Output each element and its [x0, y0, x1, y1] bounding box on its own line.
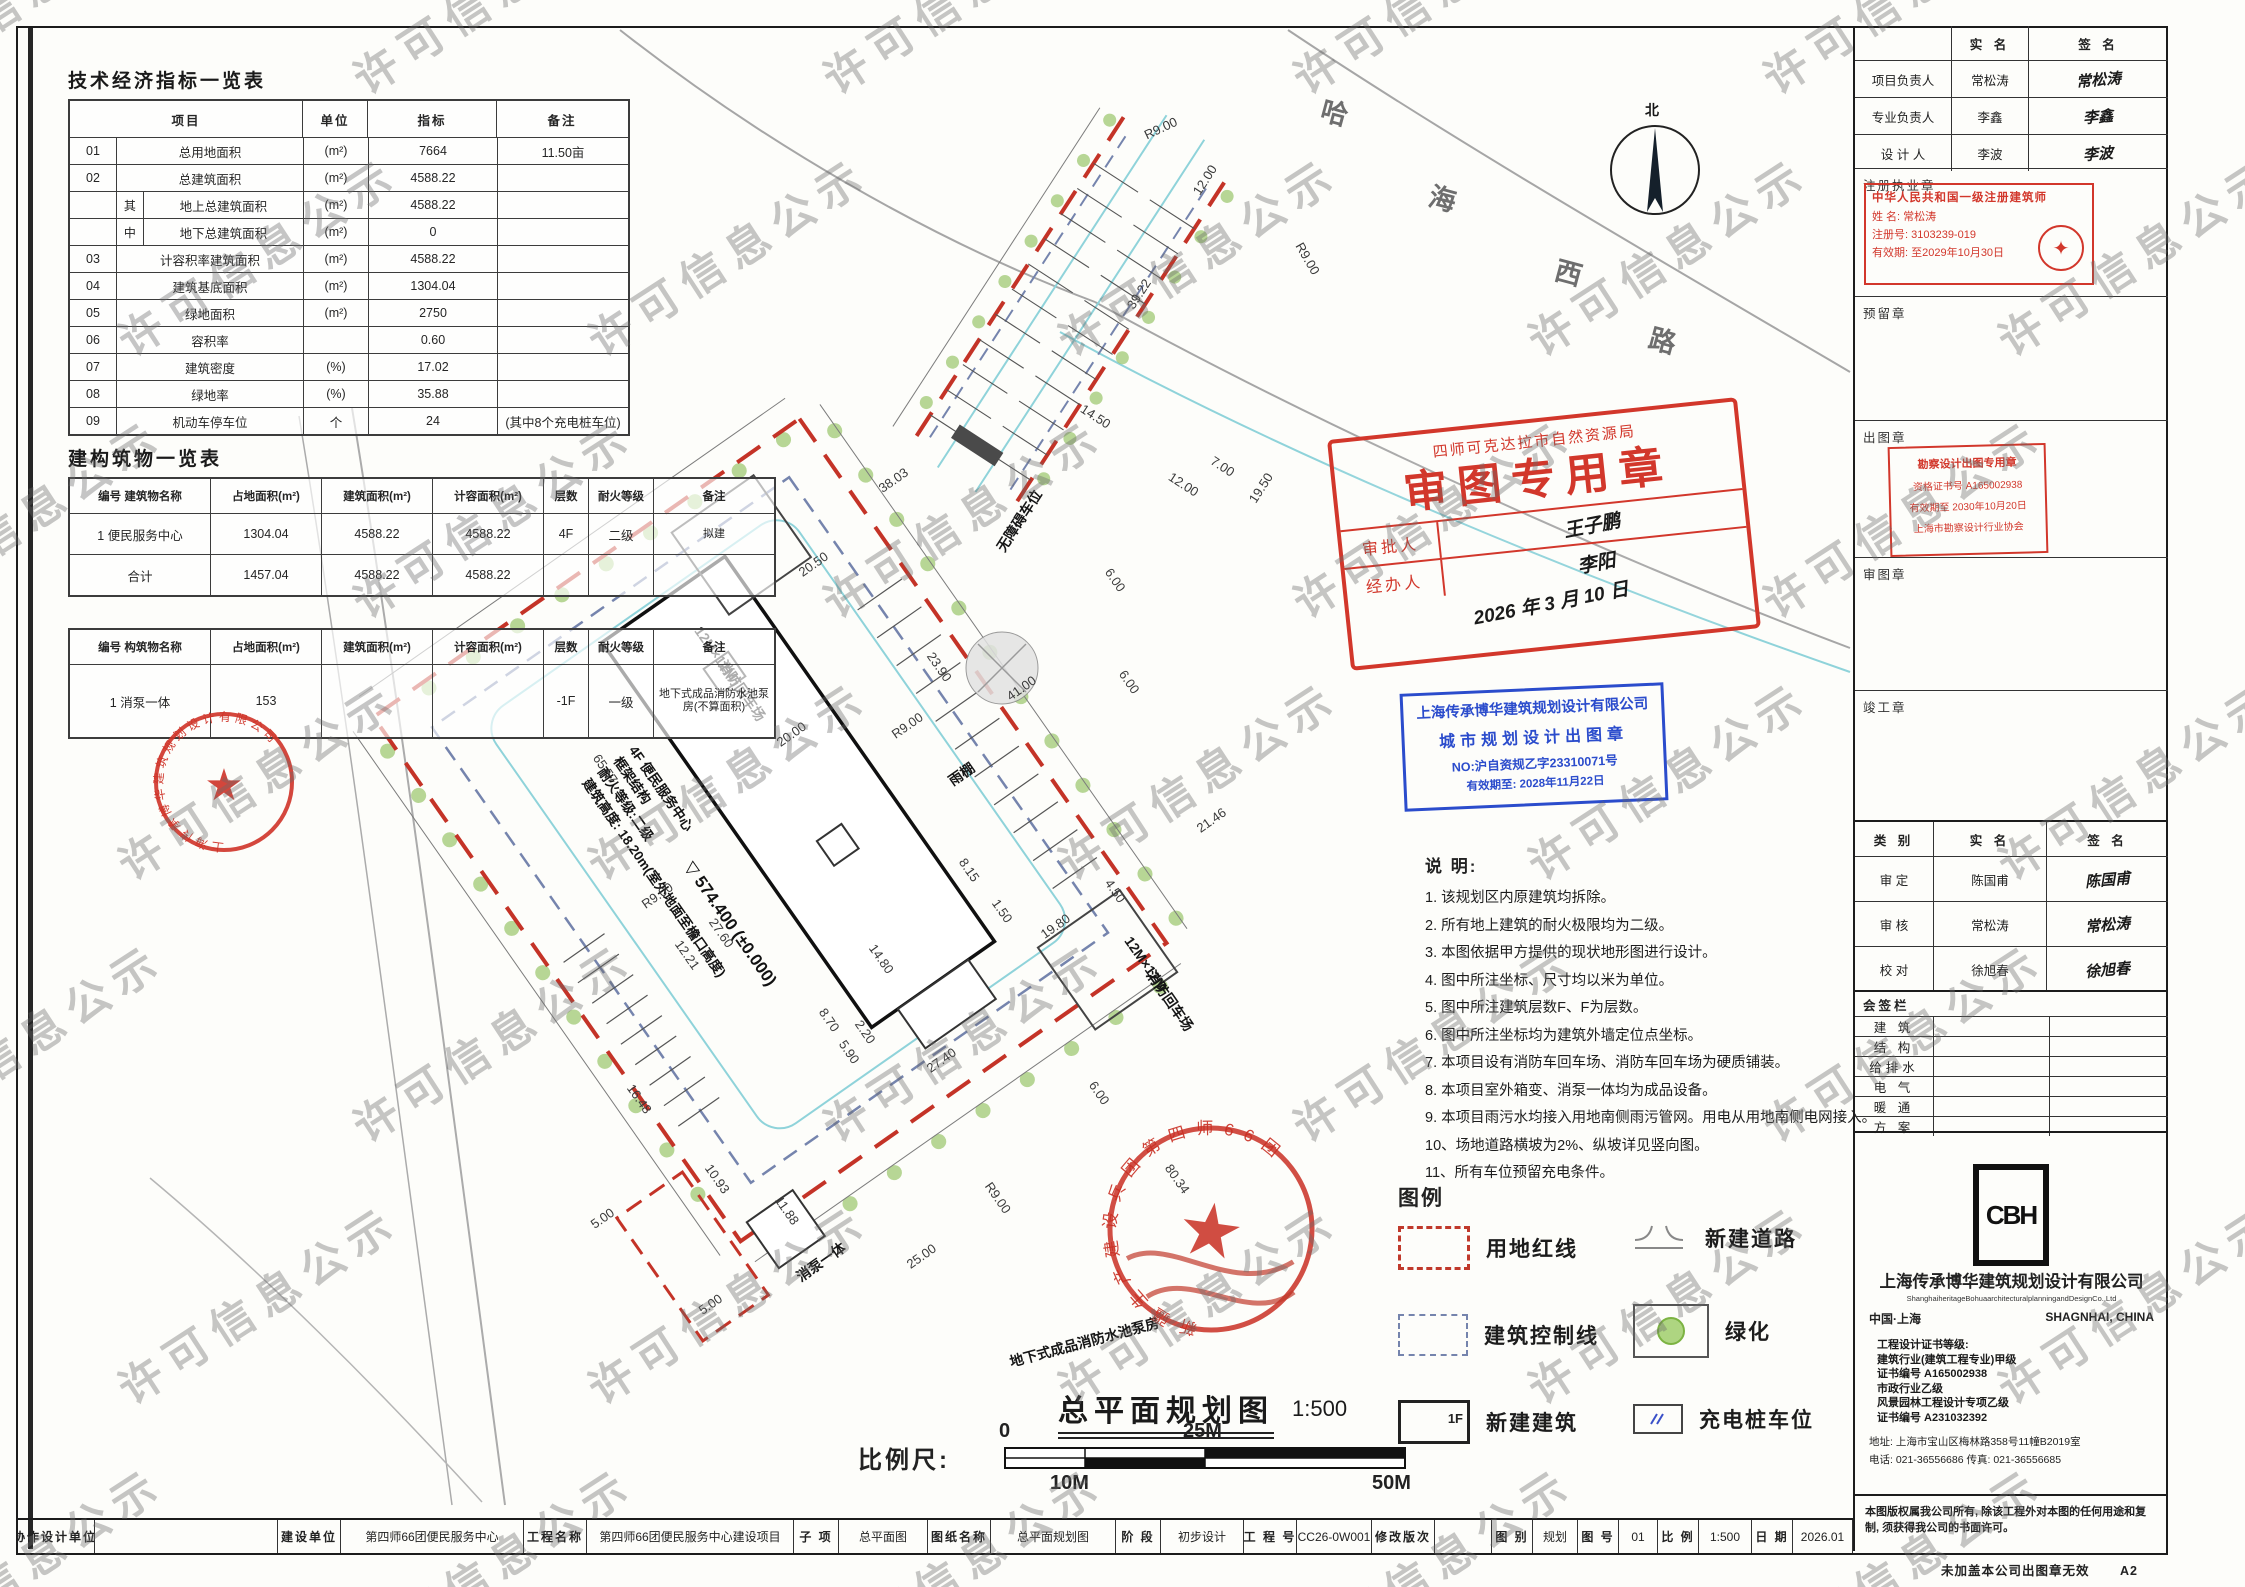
legend-label: 充电桩车位 [1699, 1404, 1814, 1434]
titlebar-value: 总平面规划图 [991, 1520, 1116, 1553]
dimension-text: 6.00 [1116, 667, 1143, 696]
table-cell: 1457.04 [211, 555, 322, 595]
titlebar-value: 1:500 [1699, 1520, 1752, 1553]
plan-label: 北 [1645, 100, 1659, 120]
buildings-table-block: 建构筑物一览表 编号 建筑物名称占地面积(m²)建筑面积(m²)计容面积(m²)… [68, 444, 776, 597]
titlebar-label: 图 号 [1578, 1520, 1619, 1553]
signature: 常松涛 [2084, 912, 2131, 937]
table-row: 中地下总建筑面积(m²)0 [70, 218, 628, 245]
table-cell: 4F [544, 514, 589, 554]
owner-unit-seal: 新疆生产建设兵团第四师66团 ★ [1088, 1106, 1334, 1352]
charging-spot-symbol [1633, 1404, 1683, 1434]
table-row: 校 对徐旭春徐旭春 [1855, 946, 2168, 991]
scale-tick: 50M [1372, 1472, 1411, 1495]
company-address: 地址: 上海市宝山区梅林路358号11幢B2019室 [1869, 1434, 2081, 1449]
signature: 李阳 [1575, 545, 1617, 579]
titlebar-value: 总平面图 [839, 1520, 928, 1553]
scale-tick: 0 [999, 1420, 1010, 1443]
review-approval-stamp: 四师可克达拉市自然资源局 审图专用章 审批人 王子鹏 经办人 李阳 2026 年… [1327, 397, 1761, 671]
location-en: SHAGNHAI, CHINA [2045, 1310, 2154, 1327]
completion-stamp-section: 竣工章 [1855, 690, 2168, 821]
section-label: 审图章 [1855, 558, 2168, 583]
table-cell [70, 219, 117, 245]
table-cell [433, 665, 544, 737]
dimension-text: R9.00 [1142, 114, 1180, 142]
legend-item: 充电桩车位 [1633, 1404, 1814, 1434]
table-cell: 17.02 [369, 354, 498, 380]
output-stamp-line: 上海市勘察设计行业协会 [1892, 517, 2046, 536]
table-cell: 建筑面积(m²) [322, 479, 433, 513]
table-cell [70, 192, 117, 218]
table-cell: 4588.22 [369, 165, 498, 191]
table-cell [2050, 1057, 2168, 1076]
table-cell [1934, 1077, 2050, 1096]
table-cell: 签 名 [2029, 26, 2168, 60]
legend-label: 用地红线 [1486, 1233, 1578, 1263]
table-cell [1934, 1097, 2050, 1116]
table-cell: 总用地面积 [117, 138, 304, 164]
dimension-text: R9.00 [1293, 240, 1323, 278]
table-cell: 李鑫 [1952, 98, 2029, 134]
table-cell [1934, 1057, 2050, 1076]
dimension-text: 20.50 [796, 549, 831, 580]
countersign-row: 暖 通 [1855, 1096, 2168, 1116]
table-cell: 05 [70, 300, 117, 326]
dimension-text: 4.50 [1102, 876, 1129, 905]
section-label: 出图章 [1855, 421, 2168, 446]
table-cell: 备注 [654, 479, 774, 513]
table-cell: (m²) [304, 138, 369, 164]
company-logo: CBH [1973, 1164, 2049, 1266]
name-cell: 其地上总建筑面积 [117, 192, 304, 218]
table-cell: 李鑫 [2029, 98, 2168, 134]
dimension-text: 5.90 [836, 1037, 863, 1066]
dimension-text: 19.50 [1246, 470, 1276, 505]
table-cell: 拟建 [654, 514, 774, 554]
table-cell [498, 219, 628, 245]
table-cell: 07 [70, 354, 117, 380]
table-cell: 1304.04 [369, 273, 498, 299]
table-cell: (m²) [304, 219, 369, 245]
table-cell [322, 665, 433, 737]
dimension-text: 65.57 [590, 751, 621, 786]
star-icon: ★ [204, 761, 243, 810]
emblem-icon: ✦ [2038, 225, 2084, 271]
table-cell: 建筑基底面积 [117, 273, 304, 299]
titlebar-label: 比 例 [1658, 1520, 1699, 1553]
titlebar-label: 图纸名称 [928, 1520, 991, 1553]
table-cell [498, 354, 628, 380]
registration-field: 姓 名: 常松涛 [1866, 207, 2092, 225]
legend-item: 新建道路 [1633, 1222, 1797, 1254]
plan-scale: 1:500 [1292, 1396, 1347, 1422]
table-cell: 徐旭春 [2047, 947, 2168, 991]
titlebar-value [95, 1520, 278, 1553]
dimension-text: 2.20 [852, 1017, 879, 1046]
table-cell: (m²) [304, 165, 369, 191]
note-item: 5. 图中所注建筑层数F、F为层数。 [1425, 995, 1865, 1023]
titlebar-label: 阶 段 [1116, 1520, 1161, 1553]
note-item: 9. 本项目雨污水均接入用地南侧雨污管网。用电从用地南侧电网接入。 [1425, 1105, 1865, 1133]
table-header-row: 类 别实 名签 名 [1855, 822, 2168, 856]
table-cell: 1304.04 [211, 514, 322, 554]
table-row: 其地上总建筑面积(m²)4588.22 [70, 191, 628, 218]
design-company-seal: 上海传承博华建筑规划设计有限公司 ★ [148, 706, 300, 858]
table-cell: (m²) [304, 300, 369, 326]
company-name-en: ShanghaiheritageBohuaarchitecturalplanni… [1855, 1294, 2168, 1303]
name-cell: 中地下总建筑面积 [117, 219, 304, 245]
table-cell: 备注 [654, 630, 774, 664]
table-cell: 总建筑面积 [117, 165, 304, 191]
location-cn: 中国·上海 [1869, 1310, 1921, 1327]
table-cell: (m²) [304, 273, 369, 299]
table-cell: 4588.22 [433, 514, 544, 554]
table-row: 07建筑密度(%)17.02 [70, 353, 628, 380]
table-cell: 03 [70, 246, 117, 272]
registration-stamp-section: 注册执业章 中华人民共和国一级注册建筑师 姓 名: 常松涛 注册号: 31032… [1855, 168, 2168, 297]
countersign-row: 电 气 [1855, 1076, 2168, 1096]
legend-item: 绿化 [1633, 1304, 1771, 1358]
legend-label: 绿化 [1725, 1316, 1771, 1346]
signature: 徐旭春 [2084, 957, 2131, 982]
dimension-text: 14.80 [866, 941, 897, 976]
registration-title: 中华人民共和国一级注册建筑师 [1866, 185, 2092, 207]
table-cell: 项目 [70, 101, 303, 137]
table-cell [498, 381, 628, 407]
dimension-text: 5.00 [588, 1205, 617, 1232]
table-cell [498, 327, 628, 353]
dimension-text: R9.00 [982, 1179, 1014, 1216]
dimension-text: 5.00 [696, 1291, 725, 1318]
table-cell: 陈国甫 [1934, 857, 2047, 901]
legend-label: 新建建筑 [1486, 1407, 1578, 1437]
titlebar-label: 协作设计单位 [16, 1520, 95, 1553]
table-cell: 4588.22 [369, 246, 498, 272]
table-cell: 层数 [544, 630, 589, 664]
table-cell: 结 构 [1855, 1037, 1934, 1056]
buildings-table-title: 建构筑物一览表 [68, 444, 776, 471]
company-phone: 电话: 021-36556686 传真: 021-36556685 [1869, 1452, 2061, 1467]
company-location: 中国·上海 SHAGNHAI, CHINA [1869, 1310, 2154, 1327]
table-cell: -1F [544, 665, 589, 737]
table-cell [498, 300, 628, 326]
table-row: 09机动车停车位个24(其中8个充电桩车位) [70, 407, 628, 434]
table-cell: 04 [70, 273, 117, 299]
countersign-row: 结 构 [1855, 1036, 2168, 1056]
planning-output-stamp: 上海传承博华建筑规划设计有限公司 城市规划设计出图章 NO:沪自资规乙字2331… [1400, 682, 1669, 811]
output-stamp-line: 有效期至 2030年10月20日 [1891, 496, 2045, 515]
scale-bar-label: 比例尺: [858, 1440, 950, 1475]
countersign-title-row: 会签栏 [1855, 992, 2168, 1016]
titlebar-label: 工程名称 [524, 1520, 587, 1553]
table-cell: (%) [304, 381, 369, 407]
table-cell: 二级 [589, 514, 654, 554]
table-row: 审 定陈国甫陈国甫 [1855, 856, 2168, 901]
title-block-column: 实 名签 名项目负责人常松涛常松涛专业负责人李鑫李鑫设 计 人李波李波 注册执业… [1853, 26, 2168, 1551]
dimension-text: 12.00 [1190, 162, 1220, 197]
table-cell: 容积率 [117, 327, 304, 353]
output-stamp: 勘察设计出图专用章 资格证书号 A165002938 有效期至 2030年10月… [1888, 443, 2049, 557]
table-row: 设 计 人李波李波 [1855, 134, 2168, 171]
table-cell: 0.60 [369, 327, 498, 353]
table-cell: 常松涛 [2029, 61, 2168, 97]
section-label: 竣工章 [1855, 691, 2168, 716]
table-cell: 专业负责人 [1855, 98, 1952, 134]
titlebar-value [1435, 1520, 1492, 1553]
sheet-size: A2 [2120, 1564, 2138, 1578]
buildings-table: 编号 建筑物名称占地面积(m²)建筑面积(m²)计容面积(m²)层数耐火等级备注… [68, 477, 776, 597]
table-cell: 绿地率 [117, 381, 304, 407]
note-item: 4. 图中所注坐标、尺寸均以米为单位。 [1425, 968, 1865, 996]
table-cell: 常松涛 [1934, 902, 2047, 946]
copyright-notice: 本图版权属我公司所有, 除该工程外对本图的任何用途和复制, 须获得我公司的书面许… [1855, 1494, 2168, 1551]
table-cell: 地上总建筑面积 [144, 192, 303, 218]
dimension-text: 19.80 [1038, 911, 1073, 942]
credential-line: 市政行业乙级 [1877, 1382, 2016, 1397]
green-blob-icon [1657, 1317, 1685, 1345]
table-cell: 李波 [2029, 135, 2168, 171]
dimension-text: 11.88 [772, 1193, 802, 1227]
countersign-row: 给排水 [1855, 1056, 2168, 1076]
countersign-title: 会签栏 [1855, 992, 2168, 1016]
among-label: 其 [117, 192, 144, 218]
note-item: 2. 所有地上建筑的耐火极限均为二级。 [1425, 913, 1865, 941]
legend-item: 1F 新建建筑 [1398, 1400, 1578, 1444]
dimension-text: 1.50 [989, 896, 1016, 925]
table-row: 项目负责人常松涛常松涛 [1855, 60, 2168, 97]
titlebar-value: 第四师66团便民服务中心 [341, 1520, 524, 1553]
table-cell: 常松涛 [1952, 61, 2029, 97]
table-cell: 审 定 [1855, 857, 1934, 901]
dimension-text: 6.00 [1102, 565, 1129, 594]
table-cell [498, 192, 628, 218]
table-cell: 一级 [589, 665, 654, 737]
table-cell [544, 555, 589, 595]
review-stamp-section: 审图章 [1855, 557, 2168, 691]
table-cell: 02 [70, 165, 117, 191]
scale-tick: 25M [1183, 1420, 1222, 1443]
new-building-symbol: 1F [1398, 1400, 1470, 1444]
table-cell: 徐旭春 [1934, 947, 2047, 991]
table-cell: 指标 [368, 101, 497, 137]
table-cell: 备注 [497, 101, 627, 137]
note-item: 7. 本项目设有消防车回车场、消防车回车场为硬质铺装。 [1425, 1050, 1865, 1078]
signature: 常松涛 [2075, 67, 2122, 92]
table-cell [304, 327, 369, 353]
reserved-stamp-section: 预留章 [1855, 296, 2168, 421]
road-name-char: 哈 [1317, 89, 1355, 134]
sheet-footnote: 未加盖本公司出图章无效 A2 [1915, 1560, 2138, 1579]
table-header-row: 项目单位指标备注 [70, 101, 628, 137]
dimension-text: 12.00 [1166, 469, 1201, 499]
table-cell [1934, 1117, 2050, 1136]
note-item: 10、场地道路横坡为2%、纵坡详见竖向图。 [1425, 1133, 1865, 1161]
table-cell [498, 165, 628, 191]
titlebar-label: 工 程 号 [1244, 1520, 1297, 1553]
dimension-text: 16.48 [624, 1081, 655, 1116]
table-cell [2050, 1037, 2168, 1056]
table-cell: 06 [70, 327, 117, 353]
red-boundary-symbol [1398, 1226, 1470, 1270]
table-cell: 7664 [369, 138, 498, 164]
new-road-symbol [1633, 1222, 1689, 1254]
dimension-text: R9.00 [889, 709, 926, 741]
building-floor-tag: 1F [1448, 1411, 1463, 1426]
table-cell: 占地面积(m²) [211, 630, 322, 664]
among-label: 中 [117, 219, 144, 245]
notes-list: 1. 该规划区内原建筑均拆除。2. 所有地上建筑的耐火极限均为二级。3. 本图依… [1425, 885, 1865, 1188]
table-cell: 单位 [303, 101, 368, 137]
table-cell: 计容积率建筑面积 [117, 246, 304, 272]
plan-label: 无障碍车位 [992, 486, 1047, 556]
table-row: 03计容积率建筑面积(m²)4588.22 [70, 245, 628, 272]
table-cell: 机动车停车位 [117, 408, 304, 434]
table-cell: 给排水 [1855, 1057, 1934, 1076]
company-name: 上海传承博华建筑规划设计有限公司 [1855, 1268, 2168, 1292]
titlebar-value: 初步设计 [1161, 1520, 1244, 1553]
dimension-text: 39.22 [1124, 276, 1154, 311]
charging-mark-icon [1648, 1412, 1668, 1426]
table-row: 02总建筑面积(m²)4588.22 [70, 164, 628, 191]
table-cell [2050, 1117, 2168, 1136]
note-item: 6. 图中所注坐标均为建筑外墙定位点坐标。 [1425, 1023, 1865, 1051]
table-cell: 1 便民服务中心 [70, 514, 211, 554]
table-cell [1855, 26, 1952, 60]
table-cell [498, 273, 628, 299]
table-row: 04建筑基底面积(m²)1304.04 [70, 272, 628, 299]
bottom-title-bar: 协作设计单位建设单位第四师66团便民服务中心工程名称第四师66团便民服务中心建设… [16, 1518, 1853, 1553]
table-cell: 类 别 [1855, 822, 1934, 856]
plan-label: 雨棚 [944, 758, 978, 790]
dimension-text: R9.00 [639, 879, 676, 911]
output-stamp-line: 勘察设计出图专用章 [1890, 453, 2044, 473]
table-header-row: 编号 构筑物名称占地面积(m²)建筑面积(m²)计容面积(m²)层数耐火等级备注 [70, 630, 774, 664]
notes-title: 说 明: [1425, 852, 1865, 877]
titlebar-value: 规划 [1533, 1520, 1578, 1553]
credential-line: 风景园林工程设计专项乙级 [1877, 1396, 2016, 1411]
table-cell: (%) [304, 354, 369, 380]
table-cell: 设 计 人 [1855, 135, 1952, 171]
table-cell: (m²) [304, 246, 369, 272]
countersign-row: 方 案 [1855, 1116, 2168, 1136]
notes-block: 说 明: 1. 该规划区内原建筑均拆除。2. 所有地上建筑的耐火极限均为二级。3… [1425, 852, 1865, 1188]
road-name-char: 路 [1645, 317, 1683, 362]
output-stamp-line: 资格证书号 A165002938 [1890, 475, 2044, 494]
table-row: 05绿地面积(m²)2750 [70, 299, 628, 326]
table-cell: 35.88 [369, 381, 498, 407]
legend-block: 图例 用地红线 新建道路 建筑控制线 绿化 1F 新建建筑 充电桩车位 [1398, 1182, 1853, 1472]
titlebar-label: 子 项 [794, 1520, 839, 1553]
table-row: 专业负责人李鑫李鑫 [1855, 97, 2168, 134]
table-cell: 4588.22 [322, 514, 433, 554]
table-cell: 合计 [70, 555, 211, 595]
legend-label: 新建道路 [1705, 1223, 1797, 1253]
table-cell: 4588.22 [369, 192, 498, 218]
dimension-text: 7.00 [1208, 453, 1237, 479]
table-cell: 陈国甫 [2047, 857, 2168, 901]
responsible-persons-table: 实 名签 名项目负责人常松涛常松涛专业负责人李鑫李鑫设 计 人李波李波 [1855, 26, 2168, 171]
indicators-table-block: 技术经济指标一览表 项目单位指标备注01总用地面积(m²)766411.50亩0… [68, 66, 630, 436]
registered-architect-stamp: 中华人民共和国一级注册建筑师 姓 名: 常松涛 注册号: 3103239-019… [1864, 183, 2094, 285]
control-line-symbol [1398, 1314, 1468, 1356]
plan-label: 消防回车场 [1142, 966, 1199, 1035]
table-row: 1 便民服务中心1304.044588.224588.224F二级拟建 [70, 513, 774, 554]
table-row: 06容积率0.60 [70, 326, 628, 353]
table-cell: 个 [304, 408, 369, 434]
indicators-table-title: 技术经济指标一览表 [68, 66, 630, 93]
titlebar-value: 2026.01 [1793, 1520, 1853, 1553]
titlebar-label: 日 期 [1752, 1520, 1793, 1553]
dimension-text: 14.50 [1078, 401, 1113, 431]
road-name-char: 西 [1551, 249, 1589, 294]
table-cell: 电 气 [1855, 1077, 1934, 1096]
table-cell: 08 [70, 381, 117, 407]
signature: 李波 [2083, 141, 2115, 165]
table-cell: 编号 建筑物名称 [70, 479, 211, 513]
star-icon: ★ [1172, 1185, 1249, 1276]
table-cell: (其中8个充电桩车位) [498, 408, 628, 434]
table-cell: 4588.22 [433, 555, 544, 595]
table-cell: 项目负责人 [1855, 61, 1952, 97]
table-cell: 校 对 [1855, 947, 1934, 991]
credential-line: 证书编号 A231032392 [1877, 1411, 2016, 1426]
dimension-text: 21.46 [1194, 805, 1229, 836]
dimension-text: 6.00 [1086, 1078, 1113, 1107]
table-row: 审 核常松涛常松涛 [1855, 901, 2168, 946]
greenery-symbol [1633, 1304, 1709, 1358]
table-cell: (m²) [304, 192, 369, 218]
dimension-text: 23.90 [924, 649, 955, 684]
table-cell: 2750 [369, 300, 498, 326]
dimension-text: 25.00 [904, 1241, 939, 1272]
dimension-text: 41.00 [1004, 673, 1039, 704]
table-cell: 审 核 [1855, 902, 1934, 946]
titlebar-value: 第四师66团便民服务中心建设项目 [587, 1520, 794, 1553]
table-cell [2050, 1077, 2168, 1096]
table-cell: 耐火等级 [589, 630, 654, 664]
table-cell: 耐火等级 [589, 479, 654, 513]
plan-label: 消泵一体 [792, 1238, 849, 1287]
table-row: 08绿地率(%)35.88 [70, 380, 628, 407]
titlebar-value: CC26-0W001 [1297, 1520, 1372, 1553]
table-header-row: 实 名签 名 [1855, 26, 2168, 60]
titlebar-value: 01 [1619, 1520, 1658, 1553]
table-cell [589, 555, 654, 595]
company-credentials: 工程设计证书等级:建筑行业(建筑工程专业)甲级证书编号 A165002938市政… [1877, 1338, 2016, 1425]
table-cell [498, 246, 628, 272]
table-cell: 地下总建筑面积 [144, 219, 303, 245]
note-item: 8. 本项目室外箱变、消泵一体均为成品设备。 [1425, 1078, 1865, 1106]
table-cell [1934, 1037, 2050, 1056]
table-cell [654, 555, 774, 595]
legend-item: 用地红线 [1398, 1226, 1578, 1270]
note-item: 3. 本图依据甲方提供的现状地形图进行设计。 [1425, 940, 1865, 968]
table-cell: 24 [369, 408, 498, 434]
table-cell: 建 筑 [1855, 1017, 1934, 1036]
table-row: 01总用地面积(m²)766411.50亩 [70, 137, 628, 164]
credential-line: 工程设计证书等级: [1877, 1338, 2016, 1353]
table-cell: 01 [70, 138, 117, 164]
dimension-text: 10.93 [702, 1161, 733, 1196]
dimension-text: 20.00 [774, 719, 809, 750]
dimension-text: 27.60 [706, 915, 737, 950]
table-cell [2050, 1097, 2168, 1116]
table-cell: 暖 通 [1855, 1097, 1934, 1116]
table-row: 合计1457.044588.224588.22 [70, 554, 774, 595]
table-header-row: 编号 建筑物名称占地面积(m²)建筑面积(m²)计容面积(m²)层数耐火等级备注 [70, 479, 774, 513]
table-cell: 签 名 [2047, 822, 2168, 856]
divider [1855, 1131, 2168, 1133]
